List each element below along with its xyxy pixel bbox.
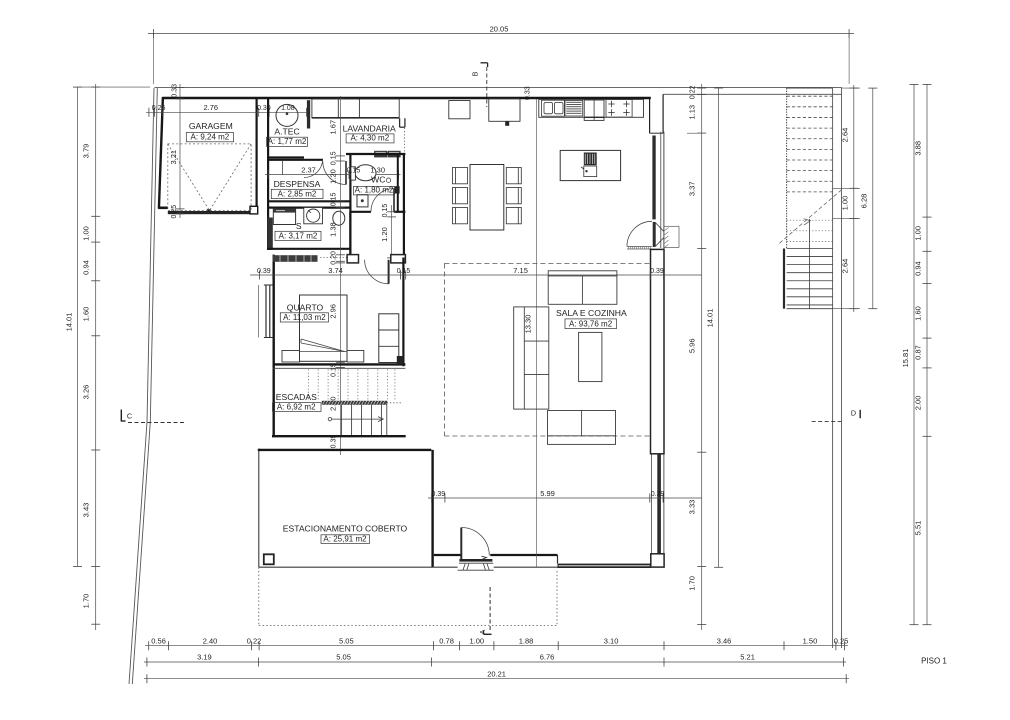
- svg-text:ESCADAS: ESCADAS: [276, 392, 317, 402]
- svg-text:1.67: 1.67: [328, 120, 337, 135]
- svg-text:3.79: 3.79: [82, 144, 91, 159]
- svg-text:DESPENSA: DESPENSA: [274, 179, 321, 189]
- svg-text:A.TEC: A.TEC: [274, 127, 299, 137]
- svg-text:0.39: 0.39: [650, 268, 664, 275]
- svg-text:5.05: 5.05: [336, 653, 351, 662]
- svg-text:1.60: 1.60: [82, 307, 91, 322]
- svg-text:0.39: 0.39: [431, 491, 445, 498]
- svg-text:2.40: 2.40: [203, 636, 218, 645]
- svg-text:6.76: 6.76: [540, 653, 555, 662]
- svg-text:0.25: 0.25: [834, 636, 849, 645]
- svg-text:2.76: 2.76: [203, 103, 218, 112]
- svg-text:3.19: 3.19: [197, 653, 212, 662]
- svg-text:5.05: 5.05: [339, 636, 354, 645]
- svg-text:0.22: 0.22: [247, 636, 262, 645]
- svg-text:2.00: 2.00: [914, 396, 923, 411]
- svg-text:1.00: 1.00: [840, 196, 849, 211]
- svg-text:0.15: 0.15: [330, 151, 337, 165]
- svg-text:0.15: 0.15: [382, 204, 389, 218]
- svg-text:3.88: 3.88: [914, 141, 923, 156]
- svg-text:1.70: 1.70: [688, 576, 697, 591]
- svg-text:3.46: 3.46: [717, 636, 732, 645]
- svg-text:1.60: 1.60: [914, 306, 923, 321]
- svg-text:0.56: 0.56: [151, 636, 166, 645]
- svg-text:6.28: 6.28: [860, 194, 869, 209]
- svg-text:2.64: 2.64: [840, 128, 849, 143]
- svg-text:5.99: 5.99: [540, 489, 555, 498]
- svg-text:1.20: 1.20: [380, 227, 389, 242]
- svg-text:3.74: 3.74: [328, 266, 343, 275]
- svg-text:0.78: 0.78: [439, 636, 454, 645]
- svg-text:A: 6,92 m2: A: 6,92 m2: [277, 402, 316, 411]
- svg-text:A: 3,17 m2: A: 3,17 m2: [279, 231, 318, 240]
- svg-text:2.96: 2.96: [328, 304, 337, 319]
- svg-text:LAVANDARIA: LAVANDARIA: [343, 124, 396, 134]
- svg-text:SALA E COZINHA: SALA E COZINHA: [556, 308, 627, 318]
- svg-text:0.15: 0.15: [397, 268, 411, 275]
- svg-text:1.20: 1.20: [328, 169, 337, 184]
- svg-text:3.10: 3.10: [604, 636, 619, 645]
- svg-text:B: B: [471, 71, 480, 76]
- svg-text:0.39: 0.39: [257, 268, 271, 275]
- svg-text:13.30: 13.30: [524, 315, 533, 334]
- svg-text:5.21: 5.21: [740, 653, 755, 662]
- svg-text:GARAGEM: GARAGEM: [189, 121, 233, 131]
- svg-text:7.15: 7.15: [513, 266, 528, 275]
- svg-text:WC: WC: [371, 174, 385, 184]
- svg-text:0.25: 0.25: [171, 205, 178, 219]
- svg-text:0.87: 0.87: [914, 345, 923, 360]
- svg-text:A: 4,30 m2: A: 4,30 m2: [350, 134, 389, 143]
- svg-text:QUARTO: QUARTO: [287, 303, 324, 313]
- svg-text:0.20: 0.20: [330, 251, 337, 265]
- svg-text:3.21: 3.21: [169, 150, 178, 165]
- svg-text:1.70: 1.70: [82, 594, 91, 609]
- svg-text:1.00: 1.00: [469, 636, 484, 645]
- svg-text:A: 2,85 m2: A: 2,85 m2: [278, 189, 317, 198]
- svg-text:14.01: 14.01: [706, 309, 715, 328]
- svg-text:A: 25,91 m2: A: 25,91 m2: [323, 534, 367, 543]
- svg-text:3.26: 3.26: [82, 385, 91, 400]
- svg-text:PISO 1: PISO 1: [921, 656, 947, 665]
- svg-text:1.38: 1.38: [328, 222, 337, 237]
- svg-text:0.33: 0.33: [172, 84, 179, 98]
- svg-text:15.81: 15.81: [901, 349, 910, 368]
- svg-text:A: 9,24 m2: A: 9,24 m2: [191, 133, 230, 142]
- svg-text:0.15: 0.15: [347, 167, 361, 174]
- svg-text:3.37: 3.37: [688, 181, 697, 196]
- svg-text:3.33: 3.33: [688, 500, 697, 515]
- svg-text:A: 1,80 m2: A: 1,80 m2: [355, 186, 394, 195]
- svg-text:A: 93,76 m2: A: 93,76 m2: [569, 319, 613, 328]
- svg-text:5.51: 5.51: [914, 521, 923, 536]
- svg-text:1.13: 1.13: [688, 105, 697, 120]
- svg-text:0.15: 0.15: [330, 192, 337, 206]
- svg-text:0.94: 0.94: [914, 261, 923, 276]
- svg-text:3.43: 3.43: [82, 503, 91, 518]
- svg-text:0.39: 0.39: [651, 491, 665, 498]
- svg-text:S: S: [296, 221, 302, 231]
- svg-text:20.21: 20.21: [487, 669, 506, 678]
- svg-text:2.37: 2.37: [301, 165, 316, 174]
- svg-text:A: 1,77 m2: A: 1,77 m2: [268, 137, 307, 146]
- svg-text:0.22: 0.22: [690, 85, 697, 99]
- svg-text:0.25: 0.25: [152, 105, 166, 112]
- svg-text:A: 11,03 m2: A: 11,03 m2: [283, 313, 326, 322]
- svg-text:2.64: 2.64: [840, 259, 849, 274]
- svg-text:1.30: 1.30: [370, 165, 385, 174]
- svg-text:C: C: [127, 412, 132, 421]
- svg-text:1.50: 1.50: [803, 636, 818, 645]
- svg-text:14.01: 14.01: [65, 313, 74, 332]
- svg-text:5.96: 5.96: [688, 338, 697, 353]
- svg-text:1.00: 1.00: [82, 226, 91, 241]
- svg-text:0.94: 0.94: [82, 260, 91, 275]
- svg-text:1.88: 1.88: [519, 636, 534, 645]
- svg-text:20.05: 20.05: [490, 25, 509, 34]
- svg-text:D: D: [851, 409, 856, 418]
- svg-text:ESTACIONAMENTO COBERTO: ESTACIONAMENTO COBERTO: [283, 524, 408, 534]
- svg-text:1.00: 1.00: [914, 226, 923, 241]
